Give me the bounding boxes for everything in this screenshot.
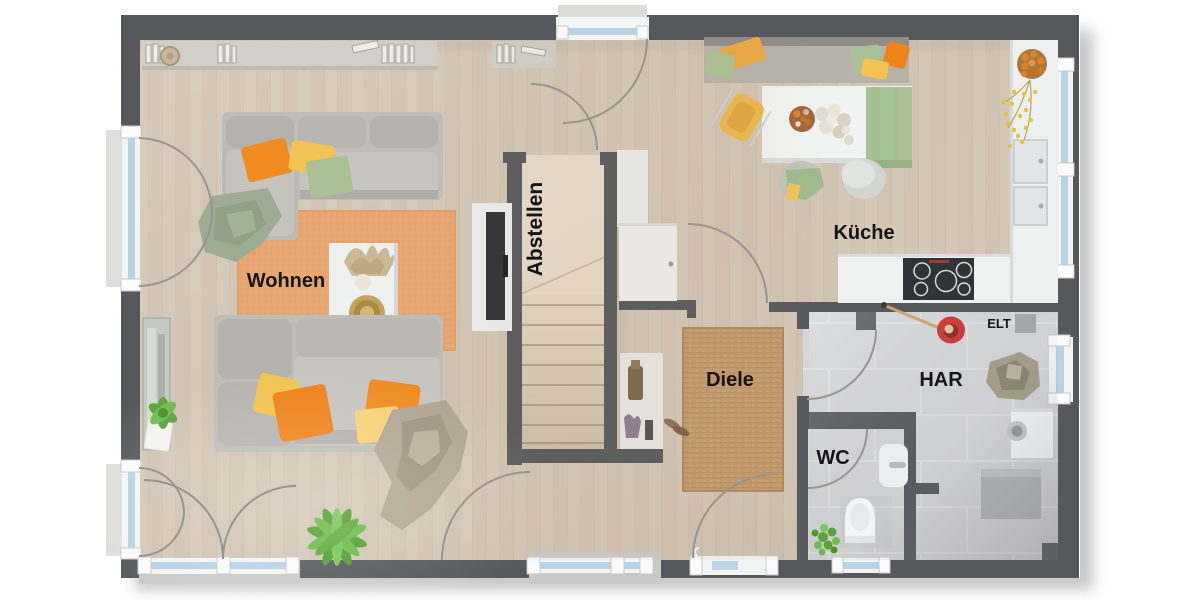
svg-text:Diele: Diele [706,369,754,391]
svg-text:WC: WC [816,447,849,469]
svg-text:ELT: ELT [987,316,1011,331]
svg-text:Wohnen: Wohnen [247,270,326,292]
svg-text:Abstellen: Abstellen [524,182,547,277]
svg-text:HAR: HAR [919,369,963,391]
svg-text:Küche: Küche [833,222,894,244]
